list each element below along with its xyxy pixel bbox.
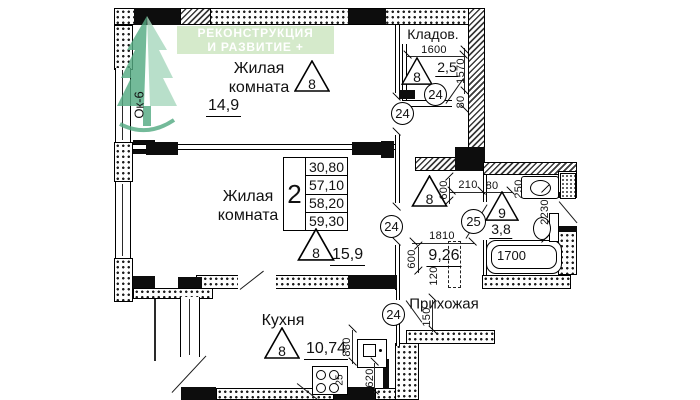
- dim-hall-step: 120: [428, 266, 440, 285]
- door-marker-24-living2-number: 24: [384, 219, 398, 234]
- area-table-row-1: 30,80: [306, 158, 347, 176]
- door-marker-24-storage: 24: [424, 83, 447, 106]
- dim-bath-length: 2230: [539, 199, 551, 225]
- balcony-door-glass: [189, 299, 190, 355]
- dim-door-bottom: 600: [406, 249, 418, 268]
- wall-bath-bottom: [482, 275, 571, 289]
- dim-pass: 150: [421, 307, 433, 326]
- area-bathroom: 3,8: [489, 221, 512, 239]
- dim-kitchen-d1: 880: [341, 337, 353, 356]
- dim-storage-width: 1600: [421, 44, 447, 56]
- balcony-door-frame: [180, 297, 200, 357]
- area-living1: 14,9: [206, 97, 241, 117]
- door-marker-24-storage-number: 24: [428, 87, 442, 102]
- kitchen-sink: [357, 339, 387, 368]
- logo-banner: РЕКОНСТРУКЦИЯ И РАЗВИТИЕ +: [177, 26, 334, 54]
- area-table: 2 30,80 57,10 58,20 59,30: [283, 157, 348, 231]
- logo-text-line2: И РАЗВИТИЕ +: [207, 40, 303, 54]
- dim-bathtub: 1700: [497, 248, 526, 263]
- stove-burner: [316, 370, 326, 380]
- area-living2: 15,9: [330, 246, 365, 266]
- partition-block-right: [352, 142, 382, 155]
- area-hallway: 9,26: [426, 247, 461, 267]
- triangle-marker-hallway-number: 8: [426, 191, 434, 207]
- window-label-ok6: Ок-6: [132, 91, 147, 118]
- dim-kitchen-d2: 620: [364, 368, 376, 387]
- room-label-living2-line1: Жилая: [223, 188, 274, 206]
- stove-burner: [316, 383, 326, 393]
- wall-left-pier-3: [114, 258, 133, 302]
- entry-jamb-bottom: [557, 226, 577, 232]
- window-2-glass: [122, 184, 123, 256]
- triangle-marker-living1: 8: [294, 60, 330, 92]
- dim-door-top: 600: [438, 180, 450, 199]
- dim-storage-depth: 1570: [455, 58, 467, 84]
- wall-bath-top-a: [415, 157, 457, 171]
- door-marker-24-living1: 24: [391, 102, 414, 125]
- triangle-marker-storage: 8: [401, 57, 433, 85]
- triangle-marker-kitchen-number: 8: [278, 343, 286, 359]
- door-marker-24-hallway: 24: [382, 303, 405, 326]
- triangle-marker-kitchen: 8: [264, 327, 300, 359]
- dim-storage-jamb: 80: [455, 96, 467, 109]
- room-label-living1-line2: комната: [229, 79, 290, 97]
- triangle-marker-bathroom: 9: [485, 191, 519, 221]
- vent-shaft: [560, 173, 576, 199]
- logo-tree-icon: [116, 14, 178, 140]
- room-label-living2-line2: комната: [218, 207, 279, 225]
- partition-block-left: [146, 142, 178, 155]
- kitchen-left-line: [154, 299, 156, 361]
- wall-hall-bottom: [406, 330, 495, 344]
- room-label-living1-line1: Жилая: [234, 60, 285, 78]
- door-marker-25-bathroom: 25: [461, 209, 486, 234]
- bath-sink: [521, 176, 559, 199]
- wall-stub: [381, 141, 394, 158]
- door-marker-25-bathroom-number: 25: [466, 214, 480, 229]
- wall-right-upper: [468, 8, 485, 160]
- wall-top-pier: [180, 8, 211, 25]
- dim-bath-door: 210: [458, 179, 477, 191]
- wall-lower-left: [133, 288, 213, 299]
- door-marker-24-living1-number: 24: [395, 106, 409, 121]
- wall-top-pilaster-2: [348, 9, 386, 24]
- wall-junction-block: [455, 147, 485, 171]
- logo-text-line1: РЕКОНСТРУКЦИЯ: [197, 26, 313, 40]
- wall-living2-block-right: [348, 275, 397, 289]
- bath-sink-bowl: [530, 180, 551, 196]
- door-marker-24-hallway-number: 24: [386, 307, 400, 322]
- dim-stove: 25: [335, 374, 346, 385]
- door-marker-24-living2: 24: [380, 215, 403, 238]
- dim-hall-width: 1810: [429, 230, 455, 242]
- wall-storage-corner: [399, 90, 415, 99]
- wall-pass-top: [396, 288, 400, 300]
- window-2: [115, 182, 131, 258]
- area-table-row-3: 58,20: [306, 195, 347, 213]
- dim-tick: [468, 237, 477, 246]
- room-label-hallway: Прихожая: [409, 296, 479, 313]
- triangle-marker-storage-number: 8: [413, 69, 421, 85]
- wall-kitchen-bottom-block-1: [181, 387, 216, 400]
- wall-pass-bottom: [396, 322, 400, 346]
- wall-living-right: [395, 25, 400, 290]
- triangle-marker-bathroom-number: 9: [498, 205, 506, 221]
- kitchen-sink-basin: [363, 344, 376, 357]
- kitchen-sink-tap: [379, 349, 382, 352]
- triangle-marker-living2-number: 8: [312, 245, 320, 261]
- room-label-storage: Кладов.: [407, 26, 458, 42]
- triangle-marker-living1-number: 8: [308, 76, 316, 92]
- wall-hall-kitchen: [395, 343, 419, 400]
- area-table-flat-type: 2: [284, 158, 306, 230]
- area-table-row-2: 57,10: [306, 176, 347, 194]
- floor-plan: РЕКОНСТРУКЦИЯ И РАЗВИТИЕ + Жилая комната…: [0, 0, 700, 400]
- wall-left-pier-2: [114, 142, 133, 182]
